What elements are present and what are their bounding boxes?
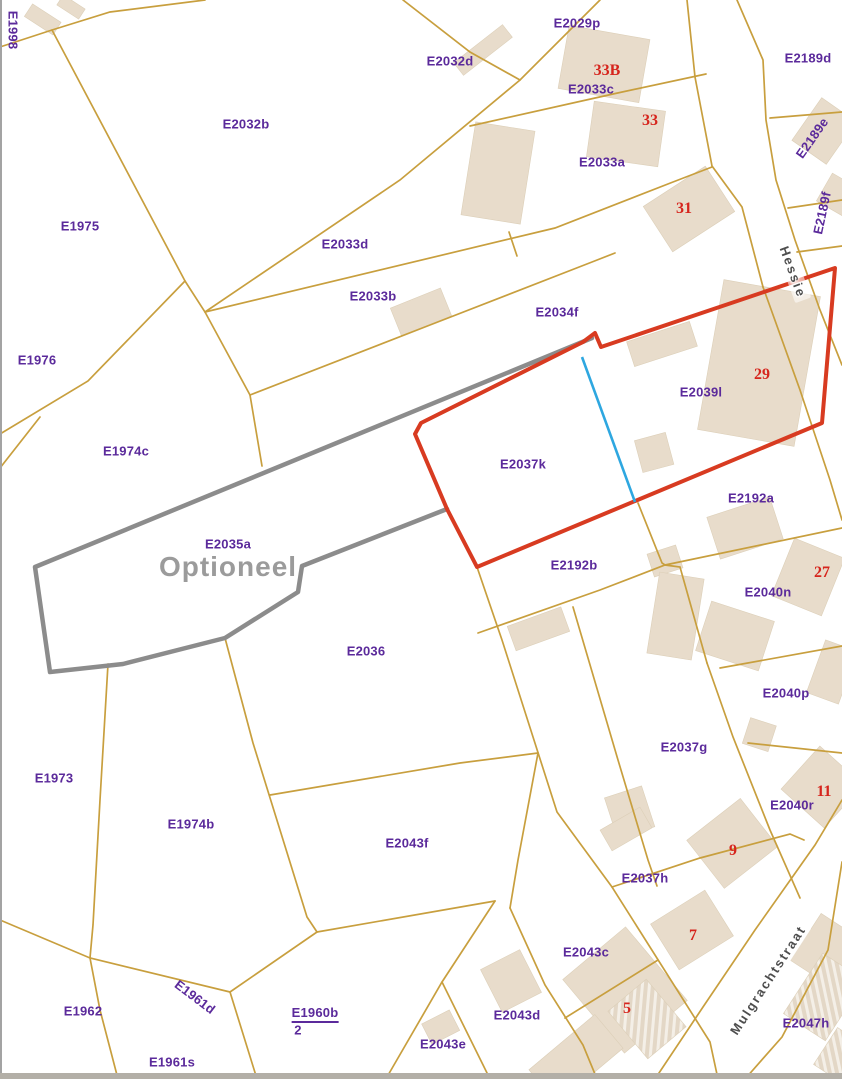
street-name: Mulgrachtstraat <box>725 919 812 1040</box>
parcel-label: E2192a <box>728 491 774 506</box>
parcel-label: E2189e <box>793 115 832 161</box>
parcel-label: E2040p <box>763 686 810 701</box>
parcel-label: E2189d <box>785 51 832 66</box>
house-number: 33B <box>594 62 621 80</box>
parcel-label: E1974c <box>103 444 149 459</box>
parcel-label: E2036 <box>347 644 386 659</box>
house-number: 31 <box>676 200 692 218</box>
house-number: 29 <box>754 366 770 384</box>
parcel-label: E2043f <box>385 836 428 851</box>
parcel-label: E1976 <box>18 353 57 368</box>
parcel-label: E2033c <box>568 82 614 97</box>
parcel-label: E2029p <box>554 16 601 31</box>
parcel-label: E2039l <box>680 385 722 400</box>
map-labels-layer: E1998E2029pE2032dE2033cE2032bE2033aE2189… <box>0 0 842 1079</box>
parcel-label: E1961s <box>149 1055 195 1070</box>
parcel-label: E2040r <box>770 798 814 813</box>
parcel-label: 2 <box>294 1023 301 1038</box>
optional-area-note: Optioneel <box>159 551 297 583</box>
parcel-label: E2032d <box>427 54 474 69</box>
parcel-label: E2033d <box>322 237 369 252</box>
parcel-label: E2034f <box>535 305 578 320</box>
house-number: 27 <box>814 564 830 582</box>
parcel-label: E2192b <box>551 558 598 573</box>
parcel-label: E2037h <box>622 871 669 886</box>
house-number: 11 <box>816 783 831 801</box>
parcel-label: E1998 <box>6 11 21 50</box>
cadastral-map[interactable]: E1998E2029pE2032dE2033cE2032bE2033aE2189… <box>0 0 842 1079</box>
map-left-edge <box>0 0 2 1079</box>
house-number: 5 <box>623 1000 631 1018</box>
parcel-label: E2033b <box>350 289 397 304</box>
parcel-label: E2032b <box>223 117 270 132</box>
street-name: Hessie <box>775 241 811 303</box>
parcel-label: E2040n <box>745 585 792 600</box>
parcel-label: E2033a <box>579 155 625 170</box>
parcel-label: E1961d <box>172 977 218 1017</box>
house-number: 33 <box>642 112 658 130</box>
house-number: 7 <box>689 927 697 945</box>
parcel-label: E1975 <box>61 219 100 234</box>
parcel-label: E2043c <box>563 945 609 960</box>
parcel-label: E2189f <box>810 190 834 235</box>
parcel-label: E1962 <box>64 1004 103 1019</box>
parcel-label: E2043e <box>420 1037 466 1052</box>
house-number: 9 <box>729 842 737 860</box>
parcel-label: E2043d <box>494 1008 541 1023</box>
parcel-label: E1973 <box>35 771 74 786</box>
map-bottom-edge <box>0 1073 842 1079</box>
parcel-label: E1974b <box>168 817 215 832</box>
parcel-label: E1960b <box>292 1005 339 1023</box>
parcel-label: E2047h <box>783 1016 830 1031</box>
parcel-label: E2037k <box>500 457 546 472</box>
parcel-label: E2035a <box>205 537 251 552</box>
parcel-label: E2037g <box>661 740 708 755</box>
